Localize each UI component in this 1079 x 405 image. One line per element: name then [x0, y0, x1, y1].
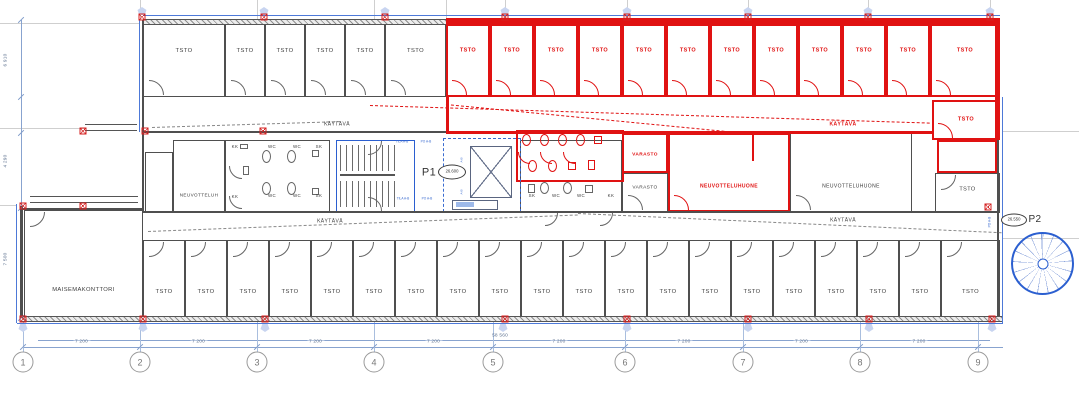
- room-label: TSTO: [870, 290, 887, 296]
- bay-dimension: 7 200: [73, 341, 90, 346]
- grid-marker: [142, 128, 149, 135]
- wall: [142, 20, 144, 213]
- grid-marker: [624, 316, 631, 323]
- text-label: PO A-B: [421, 140, 432, 143]
- room-label: TSTO: [450, 290, 467, 296]
- grid-marker: [985, 204, 992, 211]
- text-label: KÄYTÄVÄ: [317, 220, 343, 225]
- grid-marker: [987, 14, 994, 21]
- room-label: TSTO: [237, 49, 254, 55]
- room-label: TSTO: [317, 49, 334, 55]
- room-label: TSTO: [900, 48, 916, 54]
- room: [24, 210, 143, 318]
- overall-dimension: 58 560: [492, 335, 508, 340]
- room-label: TSTO: [702, 290, 719, 296]
- overall-dimension-line: [38, 340, 990, 341]
- room: [145, 152, 173, 212]
- elevator: [470, 146, 512, 198]
- dashed-path-line: [578, 213, 1002, 233]
- room: [790, 133, 912, 212]
- room-label: TSTO: [636, 48, 652, 54]
- room-label: NEUVOTTELUH: [180, 194, 219, 199]
- p2-level-badge: 26.550: [1001, 214, 1027, 227]
- grid-marker: [745, 14, 752, 21]
- wall: [20, 316, 1002, 322]
- room-label: TSTO: [812, 48, 828, 54]
- bay-dimension: 7 200: [793, 341, 810, 346]
- room-label: VARASTO: [632, 154, 658, 159]
- dashed-path-line: [148, 214, 578, 232]
- pentagon-marker: [623, 324, 632, 332]
- bay-dimension: 7 200: [550, 341, 567, 346]
- room-label: VARASTO: [632, 187, 657, 192]
- spiral-staircase: [1011, 232, 1074, 295]
- room-label: NEUVOTTELUHUONE: [700, 185, 758, 190]
- guide-line: [257, 0, 258, 19]
- wall: [997, 140, 999, 318]
- guide-line: [374, 0, 375, 19]
- text-label: A-B: [461, 189, 464, 194]
- room-label: TSTO: [768, 48, 784, 54]
- guide-line: [446, 0, 447, 19]
- left-dimension: 7 500: [5, 252, 10, 265]
- room-label: NEUVOTTELUHUONE: [822, 185, 880, 190]
- wall: [995, 25, 1000, 140]
- room-label: TSTO: [962, 290, 979, 296]
- grid-marker: [20, 203, 27, 210]
- grid-marker: [624, 14, 631, 21]
- room-label: TSTO: [460, 48, 476, 54]
- fixture-oval: [528, 160, 537, 172]
- room-label: TSTO: [576, 290, 593, 296]
- room-label: TSTO: [724, 48, 740, 54]
- fixture-oval: [262, 150, 271, 163]
- text-label: PO A-B: [422, 197, 433, 200]
- fixture-oval: [576, 134, 585, 146]
- wall: [17, 323, 1003, 324]
- wall: [143, 211, 1000, 213]
- fixture-oval: [540, 134, 549, 146]
- room-label: TSTO: [324, 290, 341, 296]
- bay-dimension: 7 200: [425, 341, 442, 346]
- stair-core-p1-label: P1: [422, 168, 436, 179]
- room-label: TSTO: [592, 48, 608, 54]
- grid-tick-line: [743, 322, 744, 353]
- text-label: KÄYTÄVÄ: [830, 219, 856, 224]
- room-label: TSTO: [156, 290, 173, 296]
- room-label: TSTO: [912, 290, 929, 296]
- grid-marker: [502, 316, 509, 323]
- grid-tick-line: [860, 322, 861, 353]
- fixture-rect: [594, 136, 602, 144]
- fixture-rect: [312, 150, 319, 157]
- grid-marker: [502, 14, 509, 21]
- grid-marker: [139, 14, 146, 21]
- left-dimension: 4 290: [5, 154, 10, 167]
- bay-dimension: 7 200: [190, 341, 207, 346]
- text-label: KK: [232, 195, 239, 199]
- grid-marker: [261, 14, 268, 21]
- wall: [446, 97, 449, 133]
- room-label: TSTO: [408, 290, 425, 296]
- grid-marker: [262, 316, 269, 323]
- grid-bubble: 6: [615, 352, 636, 373]
- room-label: TSTO: [958, 117, 974, 123]
- grid-marker: [80, 203, 87, 210]
- text-label: WC: [577, 194, 585, 198]
- room-label: TSTO: [957, 48, 973, 54]
- wall: [1002, 97, 1003, 324]
- text-label: PO A-B: [988, 217, 991, 228]
- floor-plan: P1 26.600 P2 26.550 58 560 TSTOTSTOTSTOT…: [0, 0, 1079, 405]
- text-label: WC: [293, 194, 301, 198]
- text-label: SK: [529, 194, 536, 198]
- wall: [16, 204, 17, 323]
- text-label: TILA A-B: [397, 197, 410, 200]
- grid-bubble: 8: [850, 352, 871, 373]
- room: [668, 133, 790, 212]
- text-label: KK: [608, 194, 615, 198]
- bay-dimension: 7 200: [910, 341, 927, 346]
- grid-bubble: 9: [968, 352, 989, 373]
- room-label: TSTO: [534, 290, 551, 296]
- pentagon-marker: [19, 324, 28, 332]
- text-label: WC: [293, 145, 301, 149]
- pentagon-marker: [865, 324, 874, 332]
- room-label: TSTO: [198, 290, 215, 296]
- room-label: TSTO: [366, 290, 383, 296]
- grid-marker: [382, 14, 389, 21]
- fixture-oval: [558, 134, 567, 146]
- room-label: TSTO: [282, 290, 299, 296]
- grid-tick-line: [978, 322, 979, 353]
- text-label: KÄYTÄVÄ: [324, 123, 350, 128]
- room: [937, 140, 997, 173]
- wall: [20, 206, 23, 318]
- wall: [139, 20, 140, 132]
- grid-bubble: 7: [733, 352, 754, 373]
- room-label: TSTO: [660, 290, 677, 296]
- room-label: TSTO: [176, 49, 193, 55]
- left-dimension: 6 910: [5, 53, 10, 66]
- stair-flight: [340, 181, 395, 207]
- room-label: TSTO: [357, 49, 374, 55]
- wall: [143, 131, 446, 133]
- grid-bubble: 3: [247, 352, 268, 373]
- stair-core-p2-label: P2: [1028, 215, 1041, 225]
- grid-bubble: 2: [130, 352, 151, 373]
- room-label: TSTO: [548, 48, 564, 54]
- fixture-rect: [585, 185, 593, 193]
- room-label: TSTO: [786, 290, 803, 296]
- room: [173, 140, 225, 212]
- guide-line: [0, 128, 85, 129]
- grid-bubble: 5: [483, 352, 504, 373]
- text-label: KK: [232, 145, 239, 149]
- bay-dimension: 7 200: [307, 341, 324, 346]
- room-label: MAISEMAKONTTORI: [52, 288, 115, 294]
- dashed-path-line: [152, 121, 340, 128]
- pentagon-marker: [261, 324, 270, 332]
- text-label: SK: [316, 194, 323, 198]
- grid-bubble: 4: [364, 352, 385, 373]
- room-label: TSTO: [618, 290, 635, 296]
- text-label: SK: [316, 145, 323, 149]
- pentagon-marker: [744, 324, 753, 332]
- guide-line: [1003, 131, 1079, 132]
- text-label: WC: [268, 194, 276, 198]
- dimension-chain-line: [23, 347, 1003, 348]
- text-label: A-B: [461, 157, 464, 162]
- room-label: TSTO: [744, 290, 761, 296]
- text-label: TILA A-B: [396, 140, 409, 143]
- fixture-rect: [240, 144, 248, 149]
- wall: [446, 18, 1000, 25]
- stair-rail: [340, 174, 395, 176]
- grid-marker: [140, 316, 147, 323]
- grid-marker: [20, 316, 27, 323]
- room-label: TSTO: [240, 290, 257, 296]
- text-label: KÄYTÄVÄ: [830, 123, 857, 128]
- wall: [752, 133, 754, 161]
- wall: [456, 202, 474, 207]
- grid-marker: [865, 14, 872, 21]
- room-label: TSTO: [856, 48, 872, 54]
- pentagon-marker: [988, 324, 997, 332]
- grid-marker: [745, 316, 752, 323]
- room-label: TSTO: [828, 290, 845, 296]
- room-label: TSTO: [492, 290, 509, 296]
- grid-marker: [80, 128, 87, 135]
- text-label: WC: [268, 145, 276, 149]
- room-label: TSTO: [680, 48, 696, 54]
- spiral-hub: [1037, 258, 1048, 269]
- fixture-rect: [243, 166, 249, 175]
- grid-marker: [260, 128, 267, 135]
- fixture-oval: [522, 134, 531, 146]
- stair-flight: [340, 145, 395, 171]
- guide-line: [0, 205, 16, 206]
- pentagon-marker: [499, 324, 508, 332]
- room-label: TSTO: [959, 187, 975, 193]
- fixture-rect: [528, 184, 535, 193]
- grid-marker: [866, 316, 873, 323]
- fixture-oval: [540, 182, 549, 194]
- wall: [446, 131, 932, 134]
- fixture-oval: [563, 182, 572, 194]
- wall: [143, 19, 446, 25]
- bay-dimension: 7 200: [675, 341, 692, 346]
- fixture-rect: [568, 162, 576, 170]
- grid-bubble: 1: [13, 352, 34, 373]
- room-label: TSTO: [407, 49, 424, 55]
- p1-level-badge: 26.600: [438, 165, 466, 180]
- entrance-canopy: [85, 124, 137, 131]
- room-label: TSTO: [277, 49, 294, 55]
- fixture-oval: [548, 160, 557, 172]
- grid-marker: [989, 316, 996, 323]
- grid-tick-line: [257, 322, 258, 353]
- grid-tick-line: [374, 322, 375, 353]
- text-label: WC: [552, 194, 560, 198]
- room-label: TSTO: [504, 48, 520, 54]
- fixture-rect: [588, 160, 595, 170]
- fixture-oval: [287, 150, 296, 163]
